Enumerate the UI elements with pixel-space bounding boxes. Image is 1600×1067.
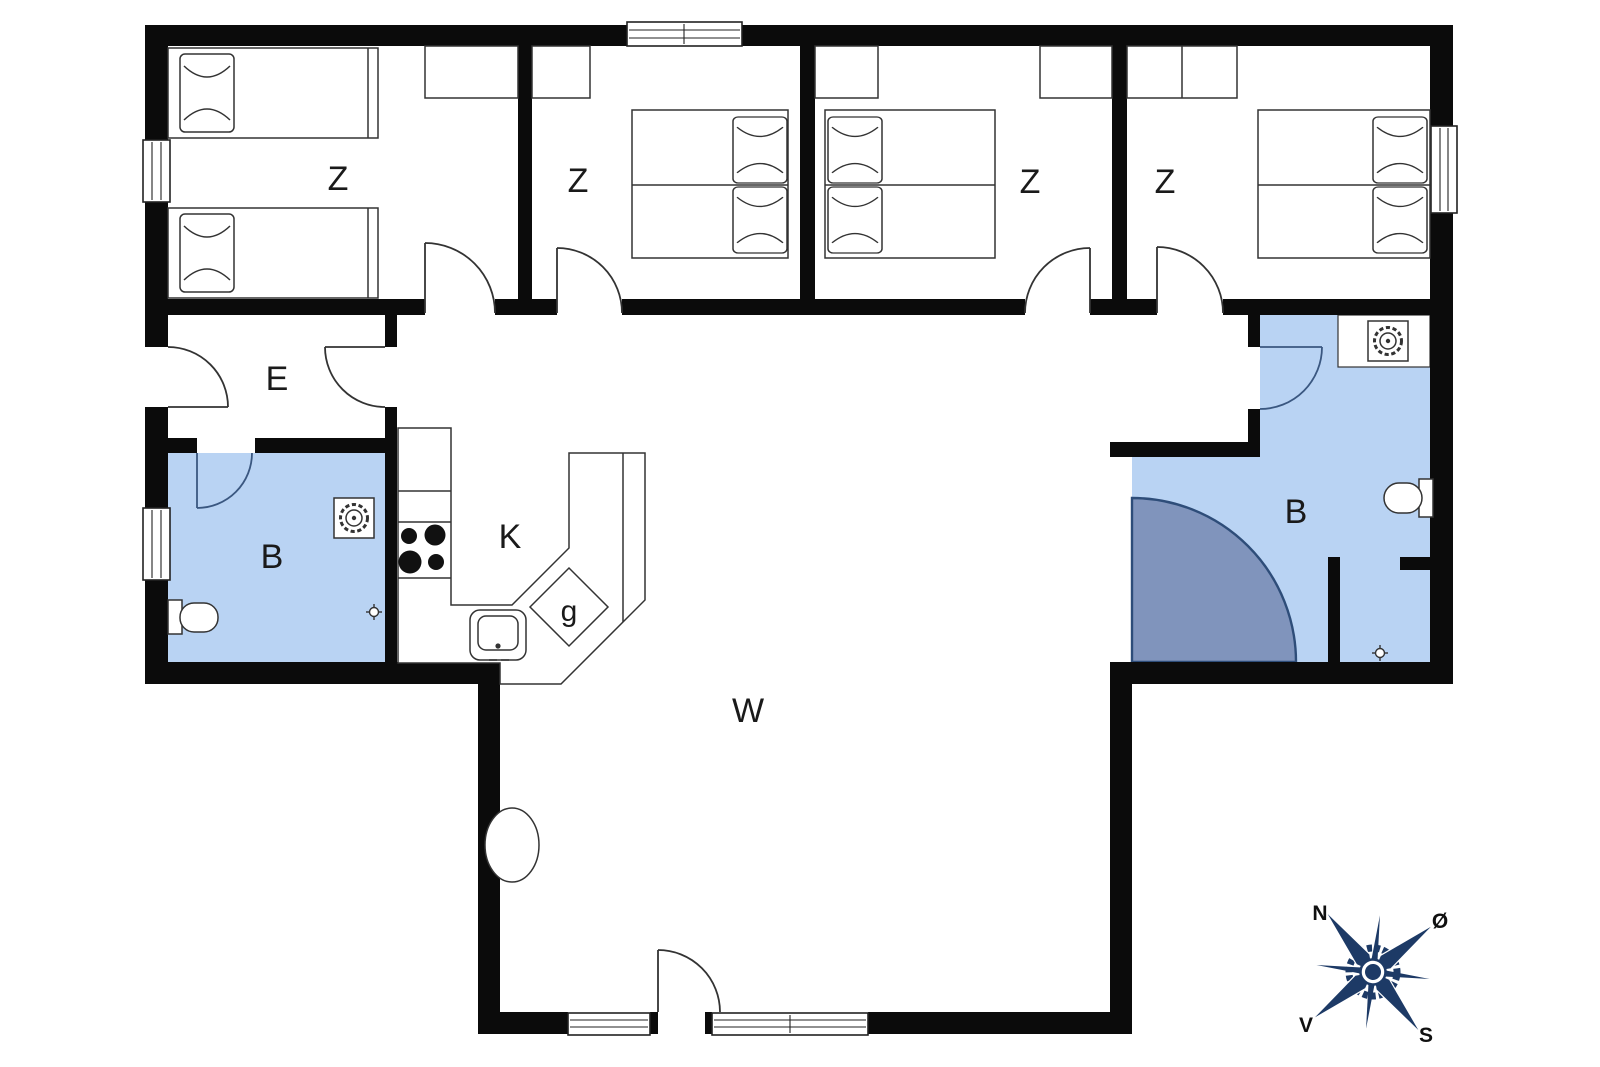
front-door <box>168 347 228 407</box>
room-label-kitchen: K <box>499 518 522 556</box>
bed-single-1 <box>168 48 378 138</box>
room-label-bedroom2: Z <box>568 162 589 200</box>
closet-bedroom3-left <box>815 46 878 98</box>
room-label-bathroom-left: B <box>261 538 284 576</box>
room-label-living: W <box>732 692 764 730</box>
round-table <box>485 808 539 882</box>
window-living-left <box>568 1013 650 1035</box>
window-bedroom1-left <box>143 140 170 202</box>
room-label-entrance: E <box>266 360 289 398</box>
toilet-right <box>1384 479 1433 517</box>
bathroom-right-floor <box>1132 313 1430 662</box>
window-living-right <box>712 1013 868 1035</box>
bed-double-bedroom3 <box>825 110 995 258</box>
terrace-door <box>658 950 720 1012</box>
closet-bedroom2 <box>532 46 590 98</box>
bedroom1-door <box>425 243 495 313</box>
compass-label-south: S <box>1419 1024 1433 1047</box>
closet-bedroom4 <box>1127 46 1237 98</box>
room-label-bedroom1: Z <box>328 160 349 198</box>
compass-rose-icon: N Ø V S <box>1299 902 1448 1047</box>
window-top <box>627 22 742 46</box>
closet-bedroom1 <box>425 46 518 98</box>
room-label-bedroom3: Z <box>1020 163 1041 201</box>
toilet-left <box>168 600 218 634</box>
room-label-hob: g <box>561 595 578 628</box>
room-label-bathroom-right: B <box>1285 493 1308 531</box>
bedroom2-door <box>557 248 622 313</box>
bed-double-bedroom4 <box>1258 110 1430 258</box>
bed-double-bedroom2 <box>632 110 788 258</box>
bedroom4-door <box>1157 247 1223 313</box>
floor-plan-page: Z Z Z Z E B K g B W N Ø V S <box>0 0 1600 1067</box>
bed-single-2 <box>168 208 378 298</box>
floor-plan-svg: Z Z Z Z E B K g B W N Ø V S <box>0 0 1600 1067</box>
compass-label-north: N <box>1312 902 1327 925</box>
washing-machine-icon <box>1368 321 1408 361</box>
closet-bedroom3-right <box>1040 46 1112 98</box>
window-bedroom4-right <box>1431 126 1457 213</box>
compass-label-west: V <box>1299 1014 1313 1037</box>
kitchen-sink <box>470 610 526 660</box>
bedroom3-door <box>1025 248 1090 313</box>
compass-label-east: Ø <box>1432 910 1448 933</box>
room-label-bedroom4: Z <box>1155 163 1176 201</box>
washing-machine-icon <box>334 498 374 538</box>
kitchen-counter <box>398 428 645 684</box>
entrance-hall-door <box>325 347 385 407</box>
window-bath-left <box>143 508 170 580</box>
